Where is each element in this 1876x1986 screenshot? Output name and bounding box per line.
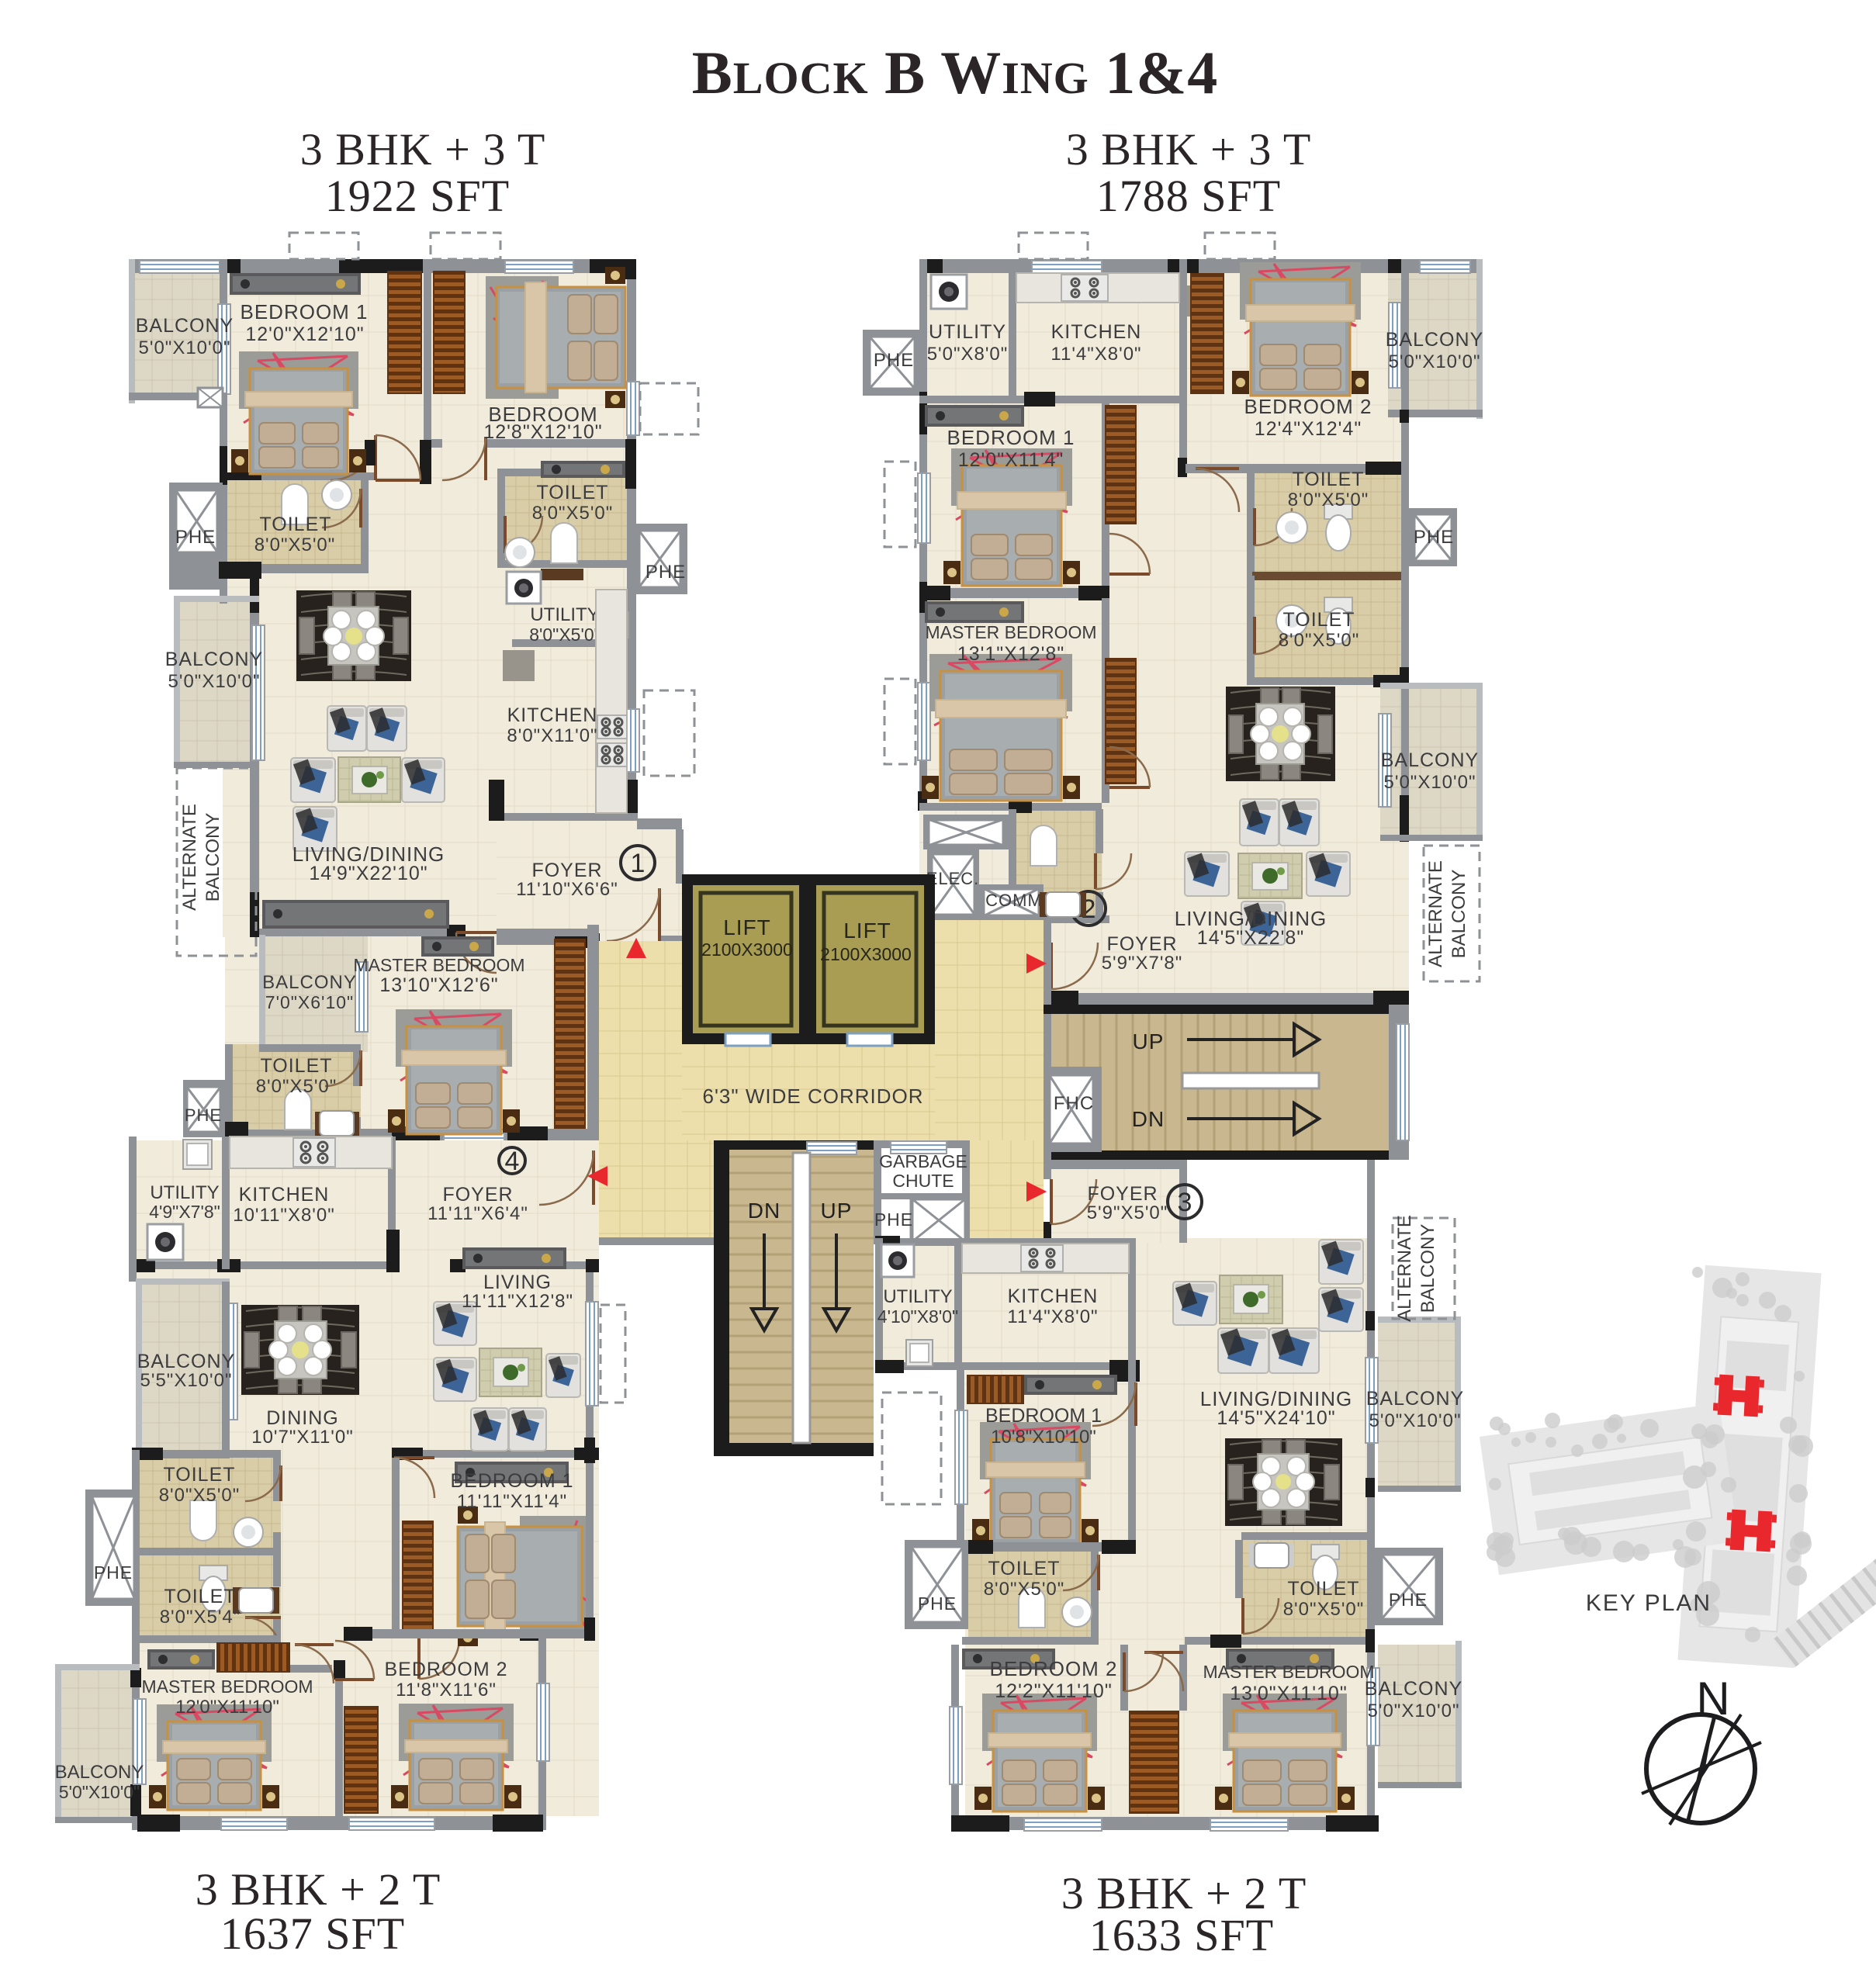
svg-text:10'7"X11'0": 10'7"X11'0" [251, 1427, 354, 1448]
svg-text:1922 SFT: 1922 SFT [325, 171, 510, 221]
svg-text:13'10"X12'6": 13'10"X12'6" [379, 974, 498, 996]
svg-text:GARBAGE: GARBAGE [879, 1151, 967, 1171]
svg-text:7'0"X6'10": 7'0"X6'10" [265, 992, 354, 1012]
svg-text:FOYER: FOYER [1087, 1183, 1158, 1205]
svg-text:BALCONY: BALCONY [1366, 1388, 1464, 1410]
svg-text:UTILITY: UTILITY [929, 321, 1006, 343]
svg-text:BALCONY: BALCONY [55, 1762, 144, 1783]
svg-text:12'0"X11'4": 12'0"X11'4" [958, 449, 1064, 471]
svg-text:ALTERNATE: ALTERNATE [179, 804, 200, 911]
svg-text:TOILET: TOILET [259, 514, 331, 535]
svg-text:FOYER: FOYER [1106, 933, 1177, 955]
svg-text:4'10"X8'0": 4'10"X8'0" [877, 1306, 958, 1327]
svg-text:11'4"X8'0": 11'4"X8'0" [1007, 1306, 1098, 1327]
svg-text:MASTER BEDROOM: MASTER BEDROOM [141, 1676, 313, 1697]
svg-text:BALCONY: BALCONY [1417, 1224, 1438, 1313]
svg-text:LIVING: LIVING [483, 1272, 552, 1293]
svg-text:5'0"X10'0": 5'0"X10'0" [1368, 1701, 1460, 1721]
svg-text:BALCONY: BALCONY [165, 649, 263, 670]
svg-text:KITCHEN: KITCHEN [1051, 321, 1142, 343]
svg-text:UTILITY: UTILITY [530, 604, 599, 625]
svg-text:MASTER BEDROOM: MASTER BEDROOM [925, 622, 1096, 642]
svg-text:3 BHK + 3 T: 3 BHK + 3 T [300, 124, 546, 175]
svg-text:TOILET: TOILET [163, 1464, 235, 1486]
svg-text:FHC: FHC [1054, 1093, 1094, 1114]
svg-text:TOILET: TOILET [260, 1055, 332, 1077]
svg-text:11'11"X6'4": 11'11"X6'4" [427, 1203, 528, 1224]
svg-text:11'4"X8'0": 11'4"X8'0" [1050, 344, 1141, 365]
svg-text:LIFT: LIFT [723, 915, 771, 939]
svg-text:6'3" WIDE CORRIDOR: 6'3" WIDE CORRIDOR [703, 1085, 924, 1108]
svg-text:BEDROOM 1: BEDROOM 1 [947, 426, 1075, 449]
svg-text:TOILET: TOILET [1287, 1578, 1359, 1600]
svg-text:3 BHK + 2 T: 3 BHK + 2 T [196, 1864, 441, 1915]
svg-text:14'9"X22'10": 14'9"X22'10" [309, 863, 427, 884]
svg-text:5'9"X5'0": 5'9"X5'0" [1087, 1202, 1168, 1223]
svg-text:MASTER BEDROOM: MASTER BEDROOM [1203, 1662, 1374, 1682]
svg-text:5'9"X7'8": 5'9"X7'8" [1102, 953, 1183, 974]
svg-text:5'5"X10'0": 5'5"X10'0" [140, 1370, 233, 1391]
svg-text:8'0"X5'0": 8'0"X5'0" [256, 1076, 337, 1097]
svg-text:4: 4 [505, 1147, 520, 1176]
svg-text:14'5"X22'8": 14'5"X22'8" [1197, 927, 1304, 949]
svg-text:8'0"X5'0": 8'0"X5'0" [529, 625, 601, 645]
svg-text:BEDROOM 2: BEDROOM 2 [384, 1659, 507, 1680]
svg-text:KITCHEN: KITCHEN [507, 704, 598, 726]
svg-text:DINING: DINING [266, 1407, 339, 1429]
svg-text:BALCONY: BALCONY [1365, 1678, 1462, 1700]
svg-text:12'0"X12'10": 12'0"X12'10" [245, 324, 364, 345]
svg-text:5'0"X10'0": 5'0"X10'0" [59, 1782, 140, 1802]
svg-text:2100X3000: 2100X3000 [820, 944, 912, 964]
svg-text:BEDROOM 1: BEDROOM 1 [985, 1405, 1102, 1427]
svg-text:3: 3 [1178, 1188, 1192, 1217]
svg-text:ALTERNATE: ALTERNATE [1394, 1215, 1415, 1322]
svg-text:8'0"X5'4": 8'0"X5'4" [160, 1607, 241, 1628]
svg-text:DN: DN [748, 1199, 781, 1223]
svg-text:BEDROOM 2: BEDROOM 2 [989, 1657, 1117, 1680]
svg-text:PHE: PHE [918, 1593, 957, 1614]
svg-text:PHE: PHE [175, 527, 216, 548]
svg-text:FOYER: FOYER [442, 1184, 513, 1206]
svg-text:BEDROOM 1: BEDROOM 1 [240, 300, 368, 324]
svg-text:10'8"X10'10": 10'8"X10'10" [991, 1427, 1096, 1448]
svg-text:KITCHEN: KITCHEN [239, 1184, 330, 1206]
svg-text:BALCONY: BALCONY [1386, 329, 1483, 351]
svg-text:KEY PLAN: KEY PLAN [1586, 1590, 1712, 1616]
svg-text:MASTER BEDROOM: MASTER BEDROOM [353, 955, 524, 975]
svg-text:12'2"X11'10": 12'2"X11'10" [995, 1680, 1112, 1702]
svg-text:CHUTE: CHUTE [892, 1171, 954, 1191]
svg-text:12'4"X12'4": 12'4"X12'4" [1255, 418, 1362, 440]
svg-text:2100X3000: 2100X3000 [701, 939, 793, 960]
svg-text:1637 SFT: 1637 SFT [220, 1908, 405, 1959]
svg-text:13'1"X12'8": 13'1"X12'8" [957, 643, 1064, 665]
svg-text:5'0"X10'0": 5'0"X10'0" [139, 337, 231, 358]
svg-text:BALCONY: BALCONY [136, 315, 234, 337]
svg-text:DN: DN [1132, 1107, 1165, 1131]
svg-text:BEDROOM 1: BEDROOM 1 [450, 1470, 573, 1492]
svg-text:TOILET: TOILET [988, 1558, 1060, 1579]
svg-text:PHE: PHE [1414, 527, 1454, 548]
svg-text:TOILET: TOILET [1282, 609, 1355, 631]
svg-text:TOILET: TOILET [164, 1586, 236, 1607]
svg-text:KITCHEN: KITCHEN [1008, 1285, 1099, 1307]
svg-text:8'0"X5'0": 8'0"X5'0" [159, 1485, 241, 1506]
svg-text:8'0"X5'0": 8'0"X5'0" [1288, 490, 1369, 510]
svg-text:5'0"X10'0": 5'0"X10'0" [1369, 1410, 1462, 1431]
svg-text:PHE: PHE [874, 350, 914, 371]
svg-text:COMM: COMM [985, 891, 1043, 910]
svg-text:5'0"X10'0": 5'0"X10'0" [168, 671, 261, 692]
svg-text:PHE: PHE [874, 1209, 913, 1230]
svg-text:11'11"X11'4": 11'11"X11'4" [457, 1491, 567, 1512]
svg-text:12'0"X11'10": 12'0"X11'10" [175, 1697, 279, 1718]
svg-text:5'0"X8'0": 5'0"X8'0" [927, 344, 1009, 365]
svg-text:8'0"X5'0": 8'0"X5'0" [1279, 630, 1360, 651]
svg-text:1788 SFT: 1788 SFT [1096, 171, 1281, 221]
svg-text:12'8"X12'10": 12'8"X12'10" [483, 421, 602, 443]
svg-text:8'0"X5'0": 8'0"X5'0" [984, 1579, 1065, 1600]
svg-text:1: 1 [631, 849, 646, 878]
svg-text:BALCONY: BALCONY [137, 1351, 235, 1372]
svg-text:TOILET: TOILET [1292, 469, 1364, 490]
svg-text:UTILITY: UTILITY [883, 1286, 952, 1307]
svg-text:3 BHK + 3 T: 3 BHK + 3 T [1066, 124, 1312, 175]
svg-text:5'0"X10'0": 5'0"X10'0" [1384, 772, 1476, 793]
svg-text:13'0"X11'10": 13'0"X11'10" [1230, 1683, 1347, 1704]
svg-text:10'11"X8'0": 10'11"X8'0" [233, 1205, 335, 1226]
svg-text:UTILITY: UTILITY [150, 1182, 219, 1203]
svg-text:8'0"X5'0": 8'0"X5'0" [532, 503, 614, 524]
svg-text:ALTERNATE: ALTERNATE [1425, 860, 1446, 967]
svg-text:PHE: PHE [646, 562, 686, 583]
svg-text:4'9"X7'8": 4'9"X7'8" [149, 1202, 220, 1222]
svg-text:11'8"X11'6": 11'8"X11'6" [396, 1680, 497, 1701]
svg-text:1633 SFT: 1633 SFT [1089, 1910, 1274, 1960]
svg-text:8'0"X5'0": 8'0"X5'0" [254, 535, 336, 555]
svg-text:BALCONY: BALCONY [262, 972, 357, 993]
svg-text:14'5"X24'10": 14'5"X24'10" [1217, 1407, 1335, 1429]
svg-text:PHE: PHE [94, 1562, 133, 1583]
svg-text:BALCONY: BALCONY [202, 813, 223, 902]
svg-text:11'10"X6'6": 11'10"X6'6" [516, 879, 618, 900]
svg-text:TOILET: TOILET [536, 482, 608, 503]
svg-text:11'11"X12'8": 11'11"X12'8" [462, 1291, 573, 1312]
svg-text:BALCONY: BALCONY [1381, 749, 1479, 771]
svg-text:PHE: PHE [185, 1105, 222, 1125]
svg-text:UP: UP [1133, 1029, 1165, 1054]
svg-text:LIFT: LIFT [843, 919, 891, 943]
svg-text:PHE: PHE [1389, 1590, 1428, 1610]
svg-text:8'0"X5'0": 8'0"X5'0" [1283, 1599, 1365, 1620]
svg-text:BALCONY: BALCONY [1449, 870, 1469, 959]
svg-text:FOYER: FOYER [531, 860, 602, 881]
svg-text:UP: UP [821, 1199, 853, 1223]
svg-text:8'0"X11'0": 8'0"X11'0" [507, 725, 597, 746]
svg-text:BEDROOM 2: BEDROOM 2 [1244, 395, 1372, 418]
svg-text:5'0"X10'0": 5'0"X10'0" [1389, 351, 1481, 372]
